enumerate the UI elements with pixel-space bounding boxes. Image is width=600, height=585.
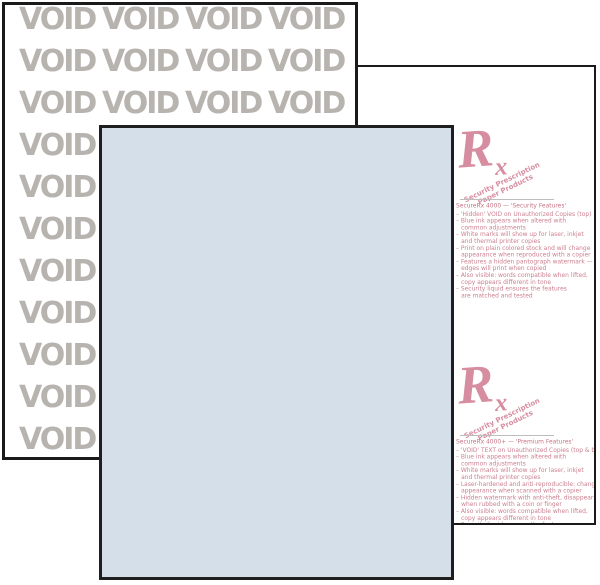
feature-list: – 'Hidden' VOID on Unauthorized Copies (…: [456, 211, 590, 299]
void-watermark-text: VOID: [19, 425, 102, 455]
feature-item: – White marks will show up for laser, in…: [456, 468, 590, 481]
void-watermark-text: VOID: [102, 47, 185, 77]
void-watermark-text: VOID: [19, 341, 102, 371]
feature-item: – Blue ink appears when altered withcomm…: [456, 218, 590, 231]
void-watermark-text: VOID: [268, 47, 351, 77]
feature-line: are matched and tested: [456, 293, 590, 299]
void-watermark-text: VOID: [102, 5, 185, 35]
void-watermark-text: VOID: [268, 5, 351, 35]
rx-divider: [460, 199, 554, 200]
feature-item: – Security liquid ensures the featuresar…: [456, 286, 590, 299]
void-watermark-text: VOID: [19, 257, 102, 287]
feature-item: – Laser-hardened and anti-reproducible: …: [456, 482, 590, 495]
void-watermark-text: VOID: [19, 215, 102, 245]
void-watermark-text: VOID: [268, 89, 351, 119]
void-watermark-text: VOID: [19, 299, 102, 329]
feature-list-wrap: SecureRx 4000+ — 'Premium Features' – 'V…: [456, 439, 590, 525]
security-paper-product-photo: R x Security Prescription Paper Products…: [0, 0, 600, 585]
rx-block: R x Security Prescription Paper Products…: [454, 363, 594, 525]
feature-item: – Also visible: words compatible when li…: [456, 509, 590, 522]
void-watermark-text: VOID: [185, 89, 268, 119]
feature-item: – Hidden watermark with anti-theft, disa…: [456, 495, 590, 508]
feature-item: – Print on plain colored stock and will …: [456, 246, 590, 259]
feature-item: – Blue ink appears when altered withcomm…: [456, 454, 590, 467]
void-watermark-text: VOID: [19, 5, 102, 35]
void-watermark-text: VOID: [19, 173, 102, 203]
feature-heading: SecureRx 4000+ — 'Premium Features': [456, 439, 590, 445]
feature-line: – Security liquid ensures the features: [456, 522, 590, 525]
void-watermark-text: VOID: [19, 47, 102, 77]
void-watermark-text: VOID: [19, 89, 102, 119]
feature-item: – Features a hidden pantograph watermark…: [456, 259, 590, 272]
rx-block: R x Security Prescription Paper Products…: [454, 127, 594, 357]
void-watermark-text: VOID: [185, 5, 268, 35]
feature-item: – Also visible: words compatible when li…: [456, 273, 590, 286]
void-watermark-text: VOID: [19, 131, 102, 161]
feature-heading: SecureRx 4000 — 'Security Features': [456, 203, 590, 209]
void-watermark-text: VOID: [102, 89, 185, 119]
rx-symbol-r: R: [456, 356, 496, 412]
rx-divider: [460, 435, 554, 436]
void-watermark-text: VOID: [19, 383, 102, 413]
feature-item: – White marks will show up for laser, in…: [456, 232, 590, 245]
rx-symbol-r: R: [456, 120, 496, 176]
feature-list: – 'VOID' TEXT on Unauthorized Copies (to…: [456, 447, 590, 525]
blue-blank-sheet: [99, 125, 454, 580]
void-watermark-text: VOID: [185, 47, 268, 77]
feature-item: – Security liquid ensures the featuresar…: [456, 522, 590, 525]
feature-list-wrap: SecureRx 4000 — 'Security Features' – 'H…: [456, 203, 590, 300]
